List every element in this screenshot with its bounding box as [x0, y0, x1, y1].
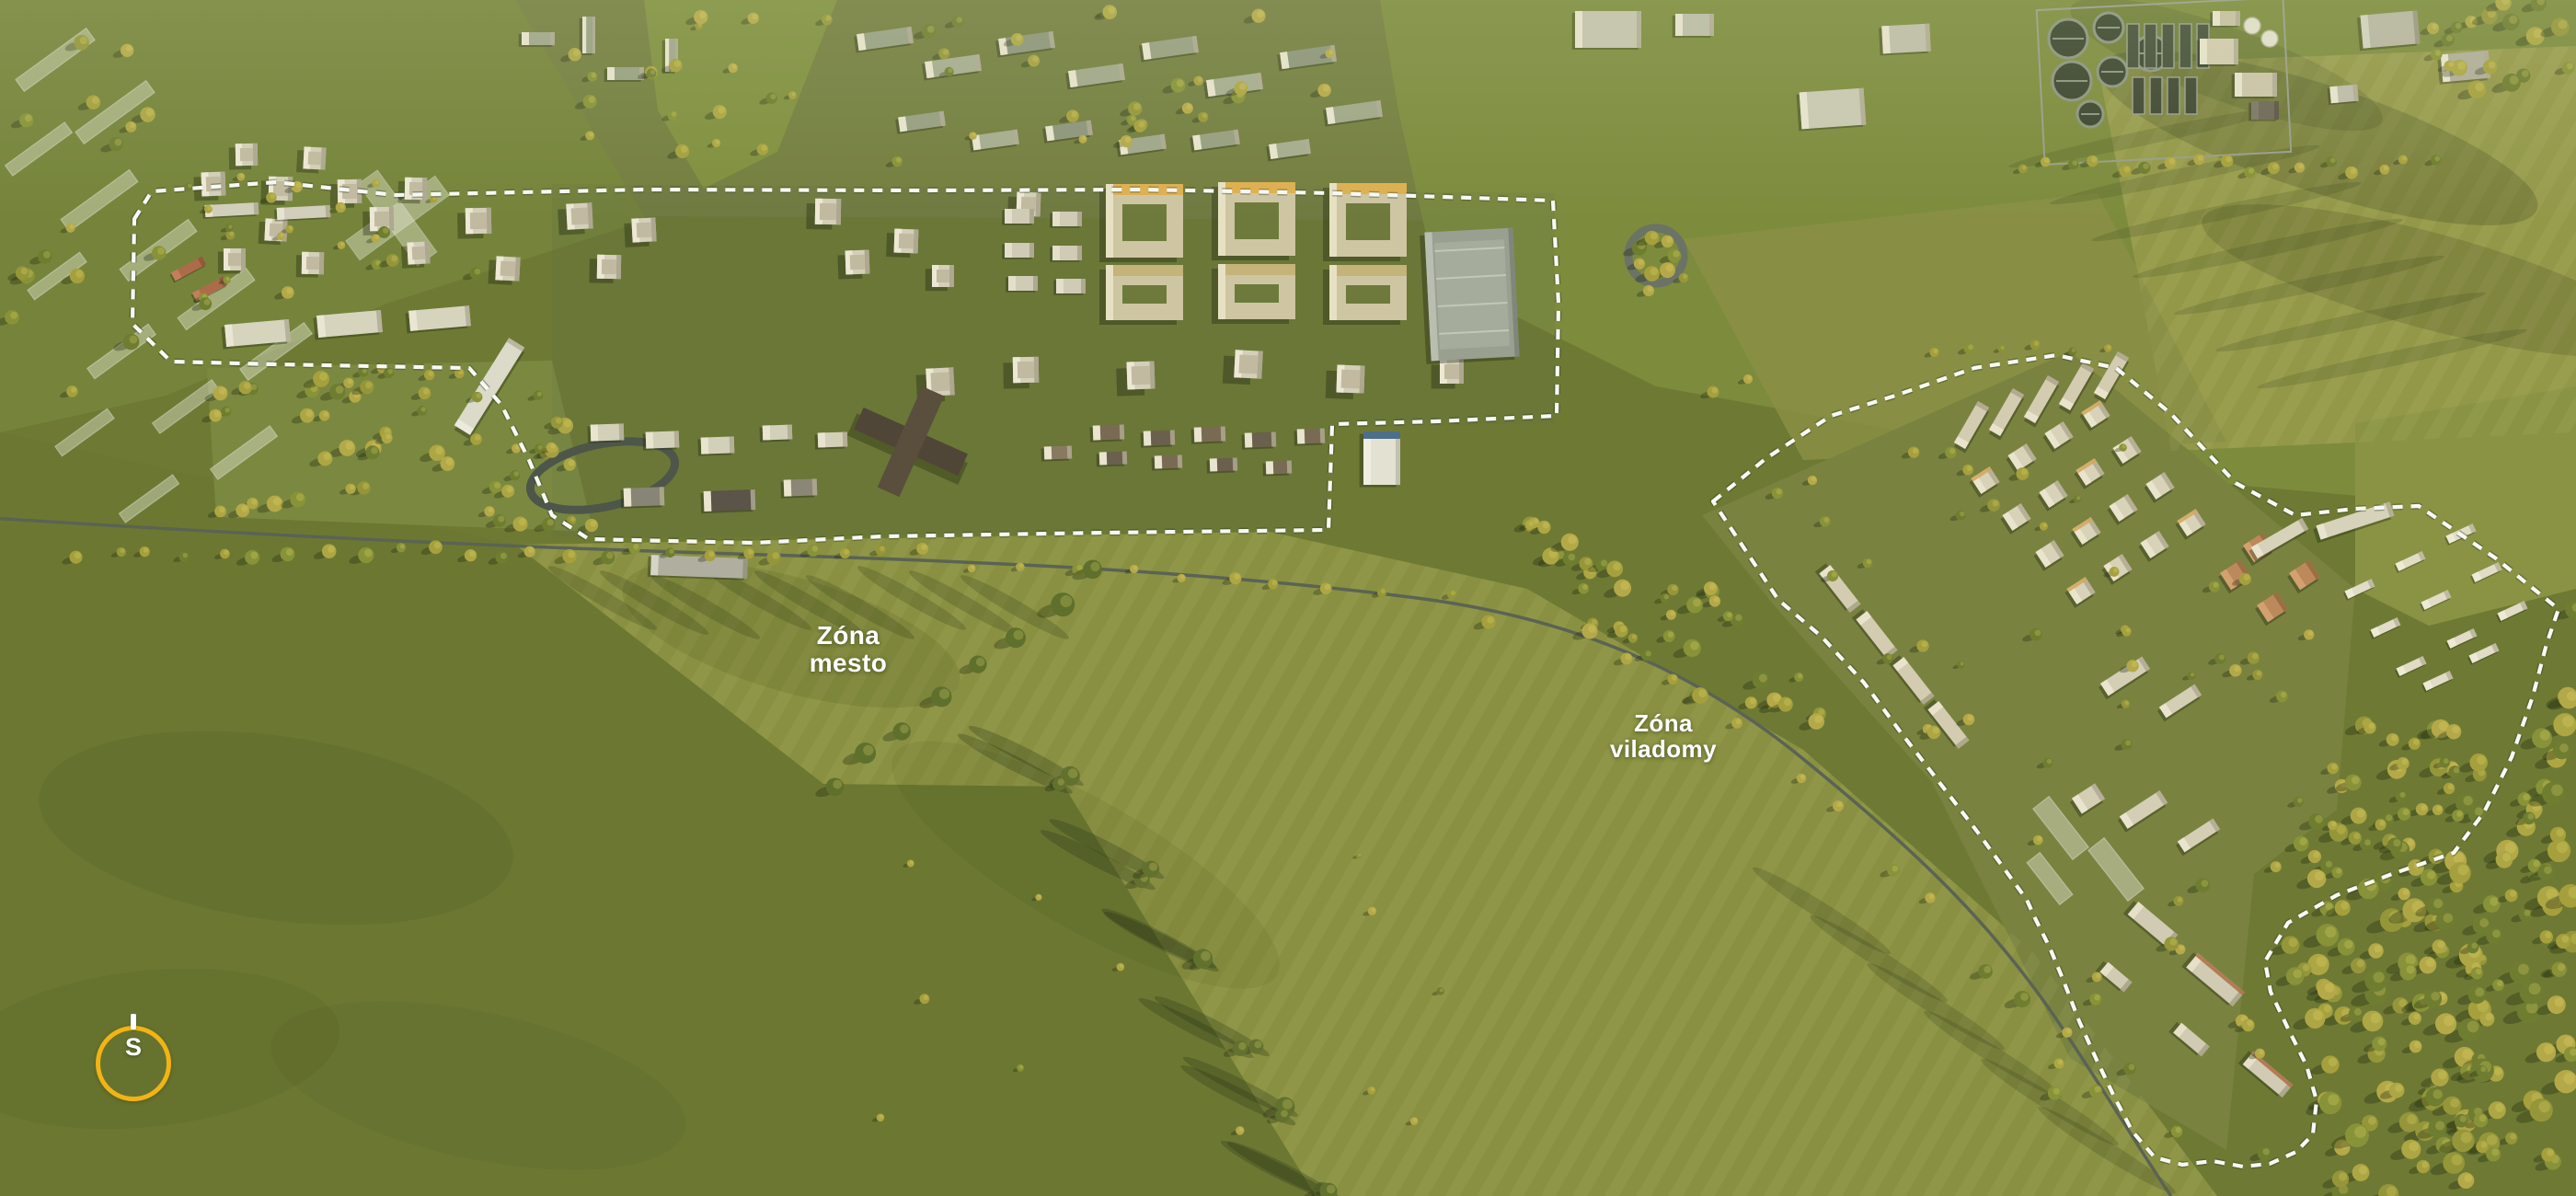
compass-north-indicator: S	[96, 1026, 171, 1101]
aerial-masterplan-render: Zóna mesto Zóna viladomy S	[0, 0, 2576, 1196]
compass-label: S	[96, 1033, 171, 1062]
compass-north-tick-icon	[131, 1014, 136, 1029]
zone-viladomy-label-line1: Zóna	[1553, 710, 1774, 736]
zone-viladomy-label: Zóna viladomy	[1553, 710, 1774, 762]
zone-mesto-label-line2: mesto	[738, 650, 959, 677]
zone-viladomy-label-line2: viladomy	[1553, 736, 1774, 762]
zone-mesto-label-line1: Zóna	[738, 622, 959, 650]
zone-mesto-label: Zóna mesto	[738, 622, 959, 677]
haze-layer	[0, 0, 2576, 1196]
masterplan-scene	[0, 0, 2576, 1196]
